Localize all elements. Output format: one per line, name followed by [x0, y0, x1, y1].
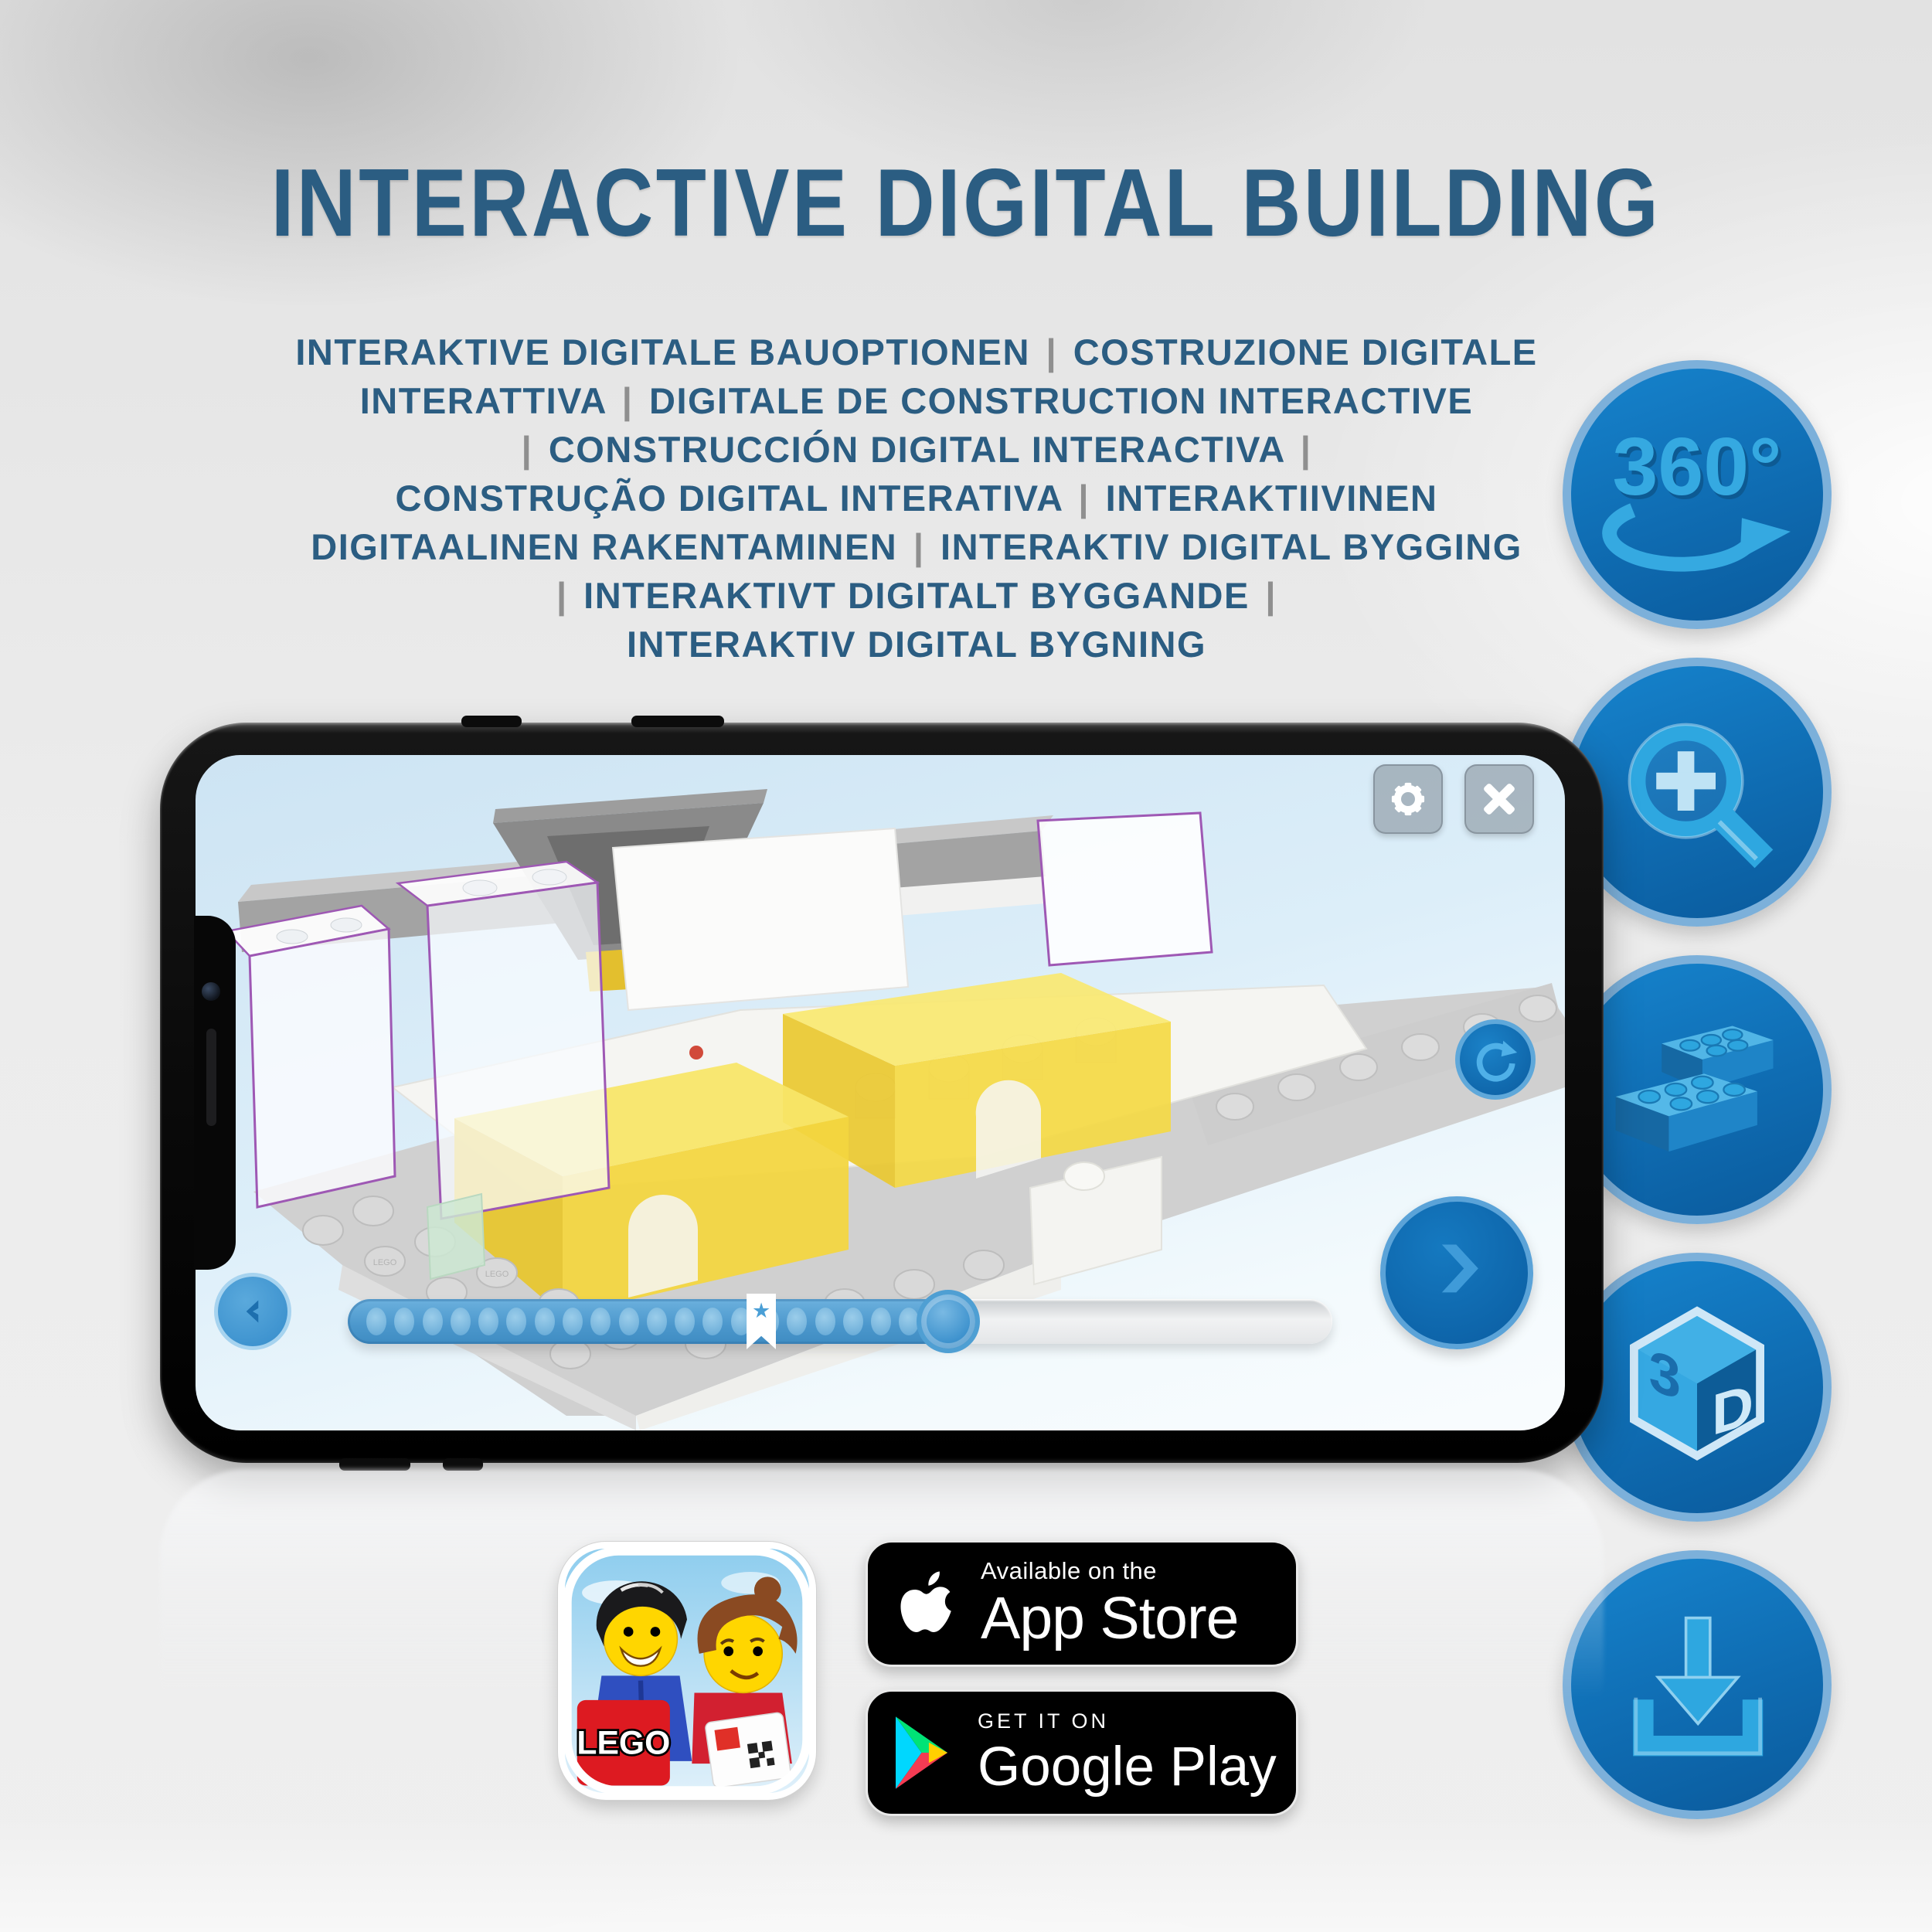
- svg-text:360°: 360°: [1613, 421, 1782, 512]
- phone: LEGO LEGO LEGO: [160, 723, 1604, 1463]
- svg-text:LEGO: LEGO: [373, 1258, 397, 1267]
- rotate-icon: [1471, 1035, 1520, 1084]
- google-play-badge[interactable]: GET IT ON Google Play: [866, 1689, 1298, 1816]
- settings-button[interactable]: [1373, 764, 1443, 834]
- svg-text:LEGO: LEGO: [485, 1270, 509, 1279]
- progress-dot: [843, 1308, 863, 1335]
- progress-dot: [394, 1308, 414, 1335]
- progress-dot: [647, 1308, 667, 1335]
- feature-360: 360° 360°: [1563, 360, 1832, 629]
- star-icon: ★: [752, 1299, 770, 1322]
- download-icon: [1604, 1592, 1790, 1777]
- zoom-in-icon: [1604, 699, 1790, 885]
- apple-icon: [896, 1566, 959, 1641]
- progress-dot: [815, 1308, 835, 1335]
- poster: INTERACTIVE DIGITAL BUILDING INTERAKTIVE…: [0, 0, 1932, 1932]
- floor-glow: [0, 1816, 1932, 1932]
- previous-step-button[interactable]: [214, 1273, 291, 1350]
- progress-dot: [506, 1308, 526, 1335]
- progress-fill: [348, 1299, 978, 1344]
- app-screen: LEGO LEGO LEGO: [196, 755, 1565, 1430]
- camera-notch: [194, 916, 236, 1270]
- brick-icon: [1600, 1001, 1794, 1179]
- app-store-name: App Store: [981, 1589, 1238, 1648]
- progress-dot: [702, 1308, 723, 1335]
- play-icon: [896, 1716, 956, 1789]
- google-play-name: Google Play: [978, 1740, 1277, 1794]
- svg-text:LEGO: LEGO: [577, 1724, 670, 1761]
- progress-dot: [478, 1308, 498, 1335]
- reset-view-button[interactable]: [1455, 1019, 1536, 1100]
- progress-handle[interactable]: [917, 1290, 980, 1353]
- close-button[interactable]: [1464, 764, 1534, 834]
- volume-button: [461, 716, 522, 727]
- progress-dot: [366, 1308, 386, 1335]
- 360-rotation-icon: 360° 360°: [1600, 397, 1794, 592]
- app-store-tagline: Available on the: [981, 1559, 1238, 1583]
- gear-icon: [1384, 775, 1432, 823]
- app-store-badge[interactable]: Available on the App Store: [866, 1540, 1298, 1667]
- progress-dot: [871, 1308, 891, 1335]
- progress-steps: [366, 1308, 919, 1335]
- progress-dot: [535, 1308, 555, 1335]
- 3d-view-icon: 3 D: [1604, 1294, 1790, 1480]
- arrow-left-icon: [233, 1291, 273, 1332]
- progress-dot: [563, 1308, 583, 1335]
- progress-dot: [787, 1308, 807, 1335]
- arrow-right-icon: [1410, 1226, 1503, 1319]
- next-step-button[interactable]: [1380, 1196, 1533, 1349]
- speaker-slot: [206, 1029, 216, 1126]
- progress-dot: [675, 1308, 695, 1335]
- lego-app-icon[interactable]: LEGO: [558, 1542, 816, 1800]
- progress-dot: [423, 1308, 443, 1335]
- svg-text:3: 3: [1649, 1338, 1681, 1413]
- lego-app-art: LEGO: [565, 1549, 809, 1793]
- camera-icon: [202, 982, 220, 1001]
- subtitle: INTERAKTIVE DIGITALE BAUOPTIONEN | COSTR…: [260, 328, 1573, 668]
- progress-dot: [451, 1308, 471, 1335]
- google-play-tagline: GET IT ON: [978, 1711, 1277, 1732]
- power-button: [631, 716, 724, 727]
- progress-dot: [590, 1308, 611, 1335]
- page-title: INTERACTIVE DIGITAL BUILDING: [135, 148, 1797, 258]
- close-icon: [1477, 777, 1522, 821]
- svg-text:D: D: [1712, 1372, 1753, 1448]
- build-progress-bar[interactable]: ★: [348, 1299, 1332, 1344]
- progress-dot: [619, 1308, 639, 1335]
